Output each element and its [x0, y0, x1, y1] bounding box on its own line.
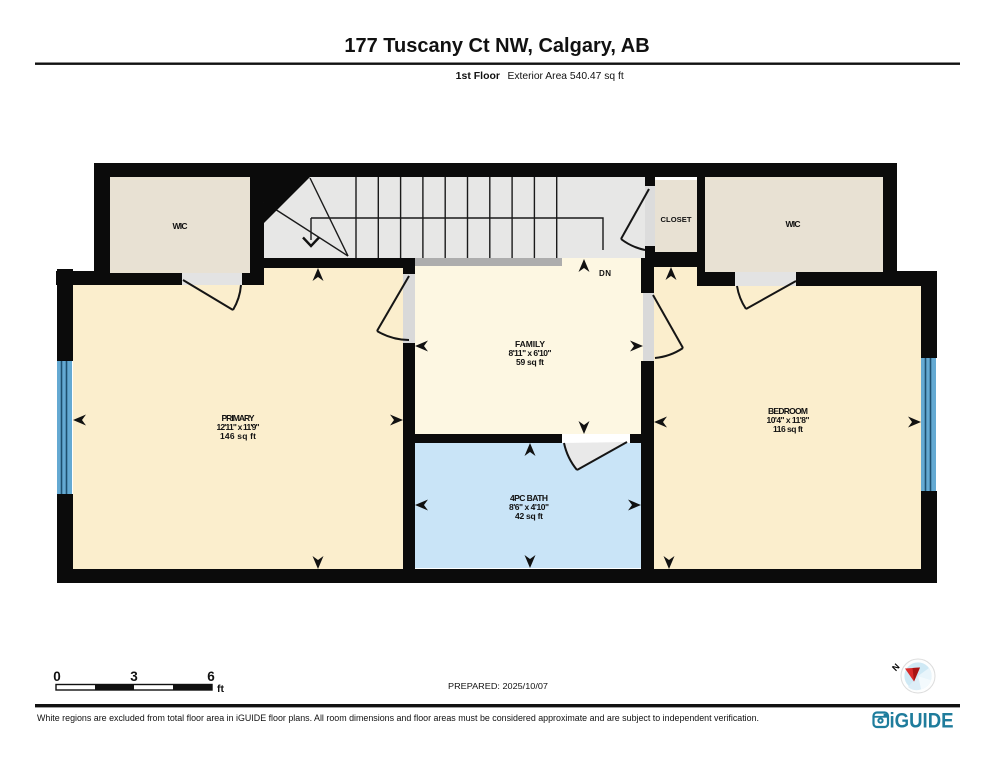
svg-text:ft: ft	[217, 683, 224, 695]
svg-text:59 sq ft: 59 sq ft	[516, 357, 544, 367]
svg-text:0: 0	[53, 669, 61, 684]
svg-text:PREPARED: 2025/10/07: PREPARED: 2025/10/07	[448, 681, 548, 691]
svg-text:N: N	[890, 661, 902, 673]
svg-text:iGUIDE: iGUIDE	[890, 710, 954, 733]
svg-text:White regions are excluded fro: White regions are excluded from total fl…	[37, 713, 759, 723]
svg-text:116 sq ft: 116 sq ft	[773, 424, 803, 434]
svg-text:DN: DN	[599, 269, 611, 278]
svg-text:CLOSET: CLOSET	[661, 215, 692, 224]
svg-text:42 sq ft: 42 sq ft	[515, 511, 543, 521]
svg-text:146 sq ft: 146 sq ft	[220, 431, 256, 441]
svg-text:6: 6	[207, 669, 215, 684]
svg-text:1st Floor: 1st Floor	[456, 70, 500, 82]
svg-text:WIC: WIC	[173, 221, 188, 231]
svg-text:177 Tuscany Ct NW, Calgary, AB: 177 Tuscany Ct NW, Calgary, AB	[344, 35, 649, 57]
svg-text:3: 3	[130, 669, 138, 684]
svg-text:Exterior Area 540.47 sq ft: Exterior Area 540.47 sq ft	[508, 71, 624, 82]
svg-text:WIC: WIC	[786, 219, 801, 229]
